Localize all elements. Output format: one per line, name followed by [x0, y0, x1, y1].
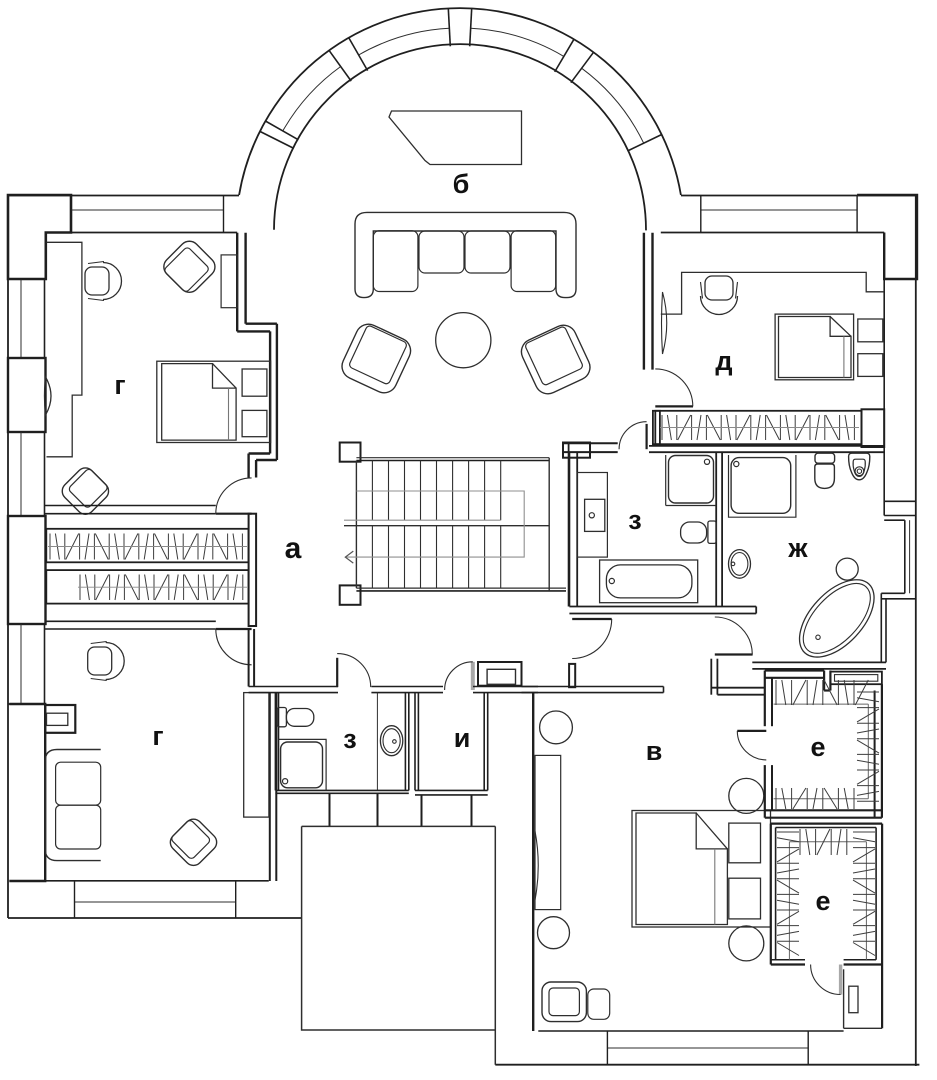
- svg-text:б: б: [453, 169, 470, 199]
- svg-text:ж: ж: [787, 533, 808, 563]
- svg-text:д: д: [715, 346, 732, 376]
- svg-text:г: г: [114, 370, 125, 400]
- svg-text:е: е: [810, 732, 825, 762]
- svg-text:а: а: [285, 532, 302, 565]
- svg-text:г: г: [152, 721, 163, 751]
- svg-text:в: в: [646, 736, 663, 766]
- svg-text:з: з: [343, 724, 356, 754]
- svg-text:з: з: [628, 505, 641, 535]
- svg-text:и: и: [454, 723, 471, 753]
- svg-text:е: е: [815, 886, 830, 916]
